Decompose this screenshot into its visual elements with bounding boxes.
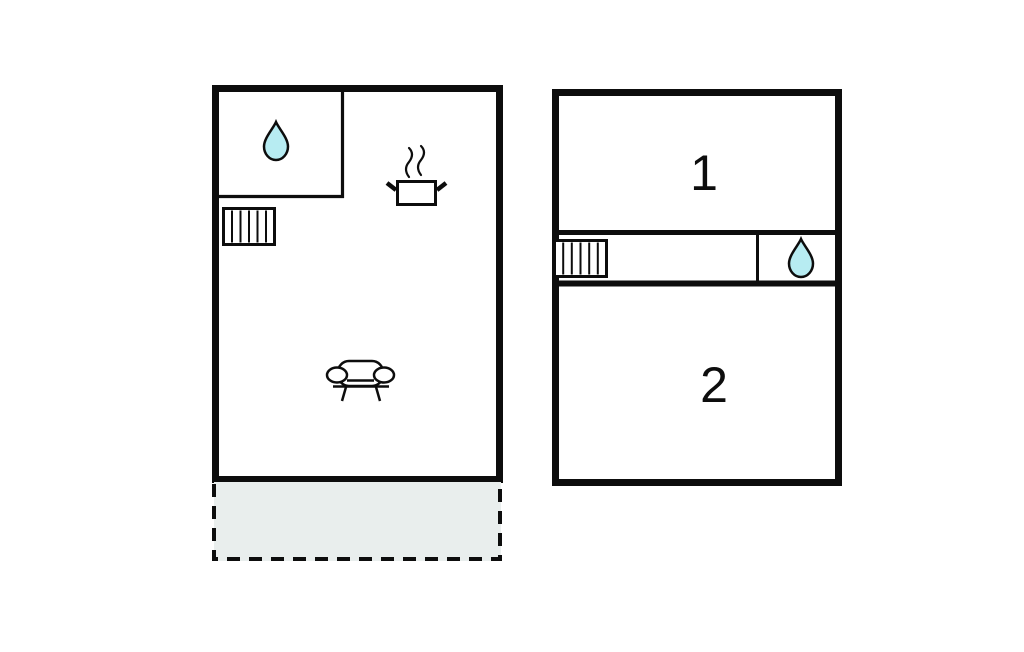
floorplan-canvas: 1 2 [0, 0, 1024, 652]
water-drop-icon [789, 239, 813, 277]
sofa-armrest-left [327, 368, 347, 383]
terrace-area [214, 482, 501, 561]
room-1-label: 1 [690, 145, 718, 201]
pot-handle-right [437, 183, 446, 190]
sofa-armrest-right [374, 368, 394, 383]
stairs-icon [224, 209, 275, 245]
sofa-leg-left [342, 387, 346, 401]
room-2-label: 2 [700, 357, 728, 413]
floorplan-svg: 1 2 [0, 0, 1024, 652]
ground-floor-outline [216, 89, 500, 480]
first-floor-plan: 1 2 [555, 93, 840, 483]
pot-handle-left [387, 183, 396, 190]
ground-floor-plan [216, 89, 500, 480]
stairs-icon [555, 241, 607, 277]
sofa-leg-right [376, 387, 380, 401]
terrace [214, 482, 501, 561]
steam-line [406, 148, 412, 177]
cooking-pot-icon [387, 146, 446, 205]
pot-body [398, 182, 436, 205]
steam-line [418, 146, 424, 175]
sofa-icon [327, 361, 394, 401]
water-drop-icon [264, 122, 288, 160]
